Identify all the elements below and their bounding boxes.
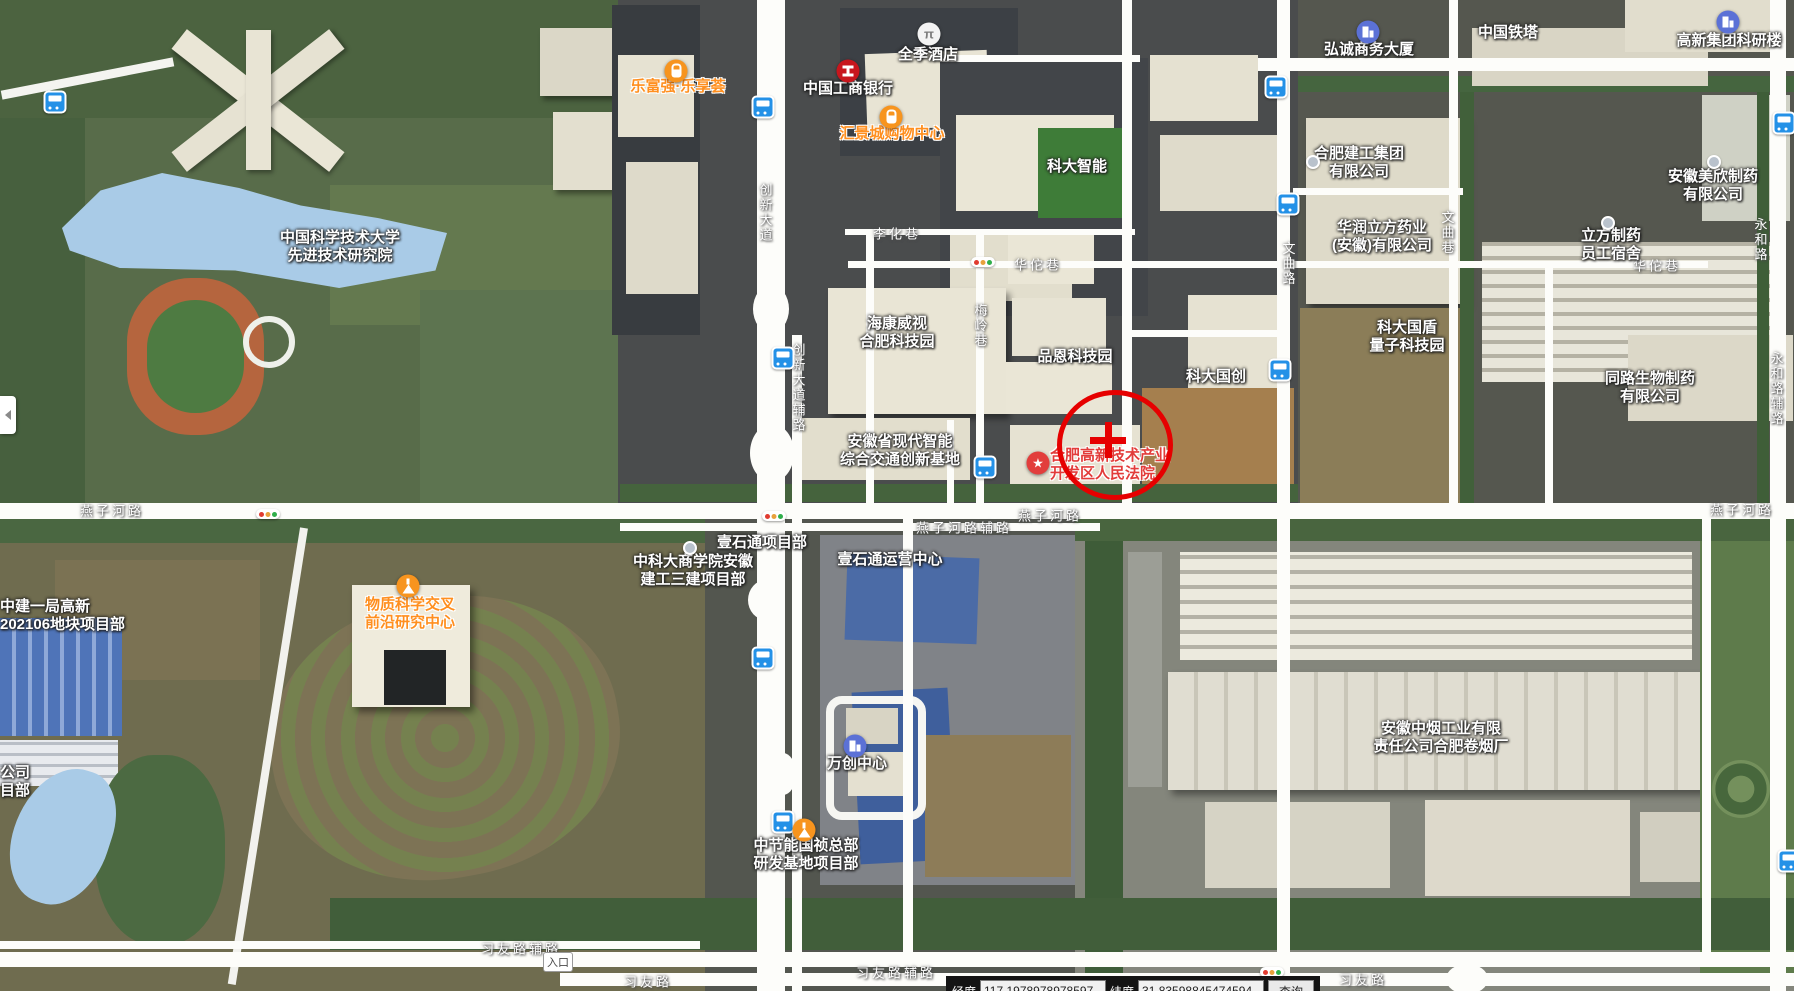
poi-label-line: 弘诚商务大厦	[1324, 41, 1414, 59]
road-segment	[903, 519, 913, 955]
traffic-light-icon	[971, 257, 995, 267]
poi-label-line: 目部	[0, 782, 30, 800]
poi-label-line: 中建一局高新	[0, 598, 125, 616]
poi-label-line: 安徽中烟工业有限	[1373, 720, 1508, 738]
dot-icon[interactable]	[1707, 155, 1721, 169]
poi-label-line: 合肥科技园	[859, 333, 934, 351]
poi-label-ustc-advanced-institute[interactable]: 中国科学技术大学先进技术研究院	[280, 229, 400, 265]
road-segment	[0, 941, 700, 949]
road-segment	[1702, 519, 1711, 955]
bus-stop-icon[interactable]	[1269, 359, 1292, 382]
terrain-patch	[246, 30, 271, 170]
road-segment	[753, 285, 789, 333]
poi-label-icbc-bank[interactable]: 中国工商银行	[803, 80, 893, 98]
latitude-label: 纬度	[1110, 983, 1134, 991]
terrain-patch	[1180, 552, 1692, 660]
chevron-left-icon	[5, 410, 11, 420]
panel-collapse-button[interactable]	[0, 396, 16, 434]
bus-stop-icon[interactable]	[752, 647, 775, 670]
road-segment	[792, 335, 802, 991]
poi-label-line: 责任公司合肥卷烟厂	[1373, 738, 1508, 756]
poi-label-ji-hotel[interactable]: 全季酒店	[898, 46, 958, 64]
road-name-label: 习友路辅路	[856, 963, 936, 982]
poi-label-yishitong-operations[interactable]: 壹石通运营中心	[837, 551, 942, 569]
road-name-label: 李化巷	[873, 224, 921, 243]
dot-icon[interactable]	[1601, 216, 1615, 230]
road-name-label: 燕子河路	[80, 501, 144, 520]
poi-label-guodun-quantum-park[interactable]: 科大国盾量子科技园	[1369, 319, 1444, 355]
poi-label-line: 综合交通创新基地	[840, 451, 960, 469]
flask-icon[interactable]	[793, 819, 816, 842]
terrain-patch	[1150, 55, 1258, 121]
entrance-badge: 入口	[543, 952, 573, 972]
road-name-label: 创新大道	[756, 183, 775, 243]
terrain-patch	[1205, 802, 1390, 888]
latitude-input[interactable]	[1138, 980, 1264, 991]
traffic-light-icon	[256, 509, 280, 519]
terrain-patch	[147, 300, 244, 413]
poi-label-line: 同路生物制药	[1605, 370, 1695, 388]
poi-label-line: 安徽省现代智能	[840, 433, 960, 451]
poi-label-line: 华润立方药业	[1332, 219, 1432, 237]
road-segment	[940, 55, 1140, 62]
terrain-patch	[626, 162, 698, 294]
road-name-label: 文曲路	[1279, 242, 1298, 287]
terrain-patch	[1460, 92, 1474, 505]
poi-label-anhui-tobacco-factory[interactable]: 安徽中烟工业有限责任公司合肥卷烟厂	[1373, 720, 1508, 756]
poi-label-line: 高新集团科研楼	[1676, 32, 1781, 50]
poi-label-hongcheng-tower[interactable]: 弘诚商务大厦	[1324, 41, 1414, 59]
poi-label-line: 有限公司	[1314, 163, 1404, 181]
poi-label-huarun-lifang-pharma[interactable]: 华润立方药业(安徽)有限公司	[1332, 219, 1432, 255]
poi-label-line: 全季酒店	[898, 46, 958, 64]
road-segment	[1277, 0, 1290, 991]
poi-label-meixin-pharma[interactable]: 安徽美欣制药有限公司	[1668, 168, 1758, 204]
poi-label-line: 先进技术研究院	[280, 247, 400, 265]
road-name-label: 习友路	[1339, 970, 1387, 989]
dot-icon[interactable]	[1306, 155, 1320, 169]
building-icon[interactable]	[1717, 11, 1740, 34]
poi-label-gaoxin-research-building[interactable]: 高新集团科研楼	[1676, 32, 1781, 50]
building-icon[interactable]	[1357, 21, 1380, 44]
star-icon[interactable]: ★	[1027, 452, 1050, 475]
terrain-patch	[384, 650, 446, 705]
poi-label-keda-guochuang[interactable]: 科大国创	[1186, 368, 1246, 386]
road-segment	[1446, 964, 1488, 991]
bus-stop-icon[interactable]	[1277, 193, 1300, 216]
bus-stop-icon[interactable]	[1773, 112, 1794, 135]
terrain-patch	[420, 290, 620, 505]
poi-label-line: 量子科技园	[1369, 337, 1444, 355]
bus-stop-icon[interactable]	[44, 91, 67, 114]
poi-label-china-tower[interactable]: 中国铁塔	[1478, 24, 1538, 42]
terrain-patch	[0, 118, 85, 505]
traffic-light-icon	[762, 511, 786, 521]
poi-label-line: 合肥建工集团	[1314, 145, 1404, 163]
bus-stop-icon[interactable]	[752, 96, 775, 119]
bus-stop-icon[interactable]	[974, 456, 997, 479]
query-button[interactable]: 查询	[1268, 980, 1314, 991]
road-name-label: 文曲巷	[1438, 211, 1457, 256]
poi-label-line: 公司	[0, 764, 30, 782]
poi-label-line: 前沿研究中心	[365, 614, 455, 632]
terrain-patch	[1712, 760, 1770, 818]
poi-label-hefei-construction-group[interactable]: 合肥建工集团有限公司	[1314, 145, 1404, 181]
poi-label-line: 万创中心	[827, 755, 887, 773]
poi-label-line: 壹石通项目部	[717, 534, 807, 552]
road-segment	[1122, 330, 1282, 337]
poi-label-line: 安徽美欣制药	[1668, 168, 1758, 186]
road-name-label: 永和路	[1751, 218, 1770, 263]
poi-label-zhongjieneng-site[interactable]: 中节能国祯总部研发基地项目部	[753, 837, 858, 873]
terrain-patch	[95, 755, 225, 945]
poi-label-yishitong-project[interactable]: 壹石通项目部	[717, 534, 807, 552]
road-segment	[1293, 188, 1463, 195]
terrain-patch	[1757, 92, 1769, 505]
longitude-label: 经度	[952, 983, 976, 991]
poi-label-hikvision-park[interactable]: 海康威视合肥科技园	[859, 315, 934, 351]
terrain-patch	[1160, 135, 1278, 211]
poi-label-line: 科大国盾	[1369, 319, 1444, 337]
poi-label-line: 立方制药	[1581, 227, 1641, 245]
road-name-label: 梅岭巷	[971, 304, 990, 349]
flask-icon[interactable]	[397, 575, 420, 598]
road-name-label: 永和路辅路	[1767, 352, 1786, 427]
bag-icon[interactable]	[665, 60, 688, 83]
poi-label-ustc-business-school-site[interactable]: 中科大商学院安徽建工三建项目部	[633, 553, 753, 589]
poi-label-line: 壹石通运营中心	[837, 551, 942, 569]
longitude-input[interactable]	[980, 980, 1106, 991]
poi-label-wanchuang-center[interactable]: 万创中心	[827, 755, 887, 773]
building-icon[interactable]	[844, 735, 867, 758]
target-crosshair-marker	[1090, 422, 1126, 458]
bag-icon[interactable]	[880, 106, 903, 129]
coordinate-bar: 经度 纬度 查询	[946, 976, 1320, 991]
poi-label-line: 中国铁塔	[1478, 24, 1538, 42]
poi-label-line: 海康威视	[859, 315, 934, 333]
poi-label-line: 科大国创	[1186, 368, 1246, 386]
bus-stop-icon[interactable]	[1265, 76, 1288, 99]
poi-label-matter-science-center[interactable]: 物质科学交叉前沿研究中心	[365, 596, 455, 632]
terrain-patch	[925, 735, 1071, 877]
road-segment	[1258, 58, 1794, 71]
terrain-patch	[1425, 800, 1630, 896]
poi-label-line: 有限公司	[1668, 186, 1758, 204]
poi-label-line: 品恩科技园	[1037, 348, 1112, 366]
road-name-label: 华佗巷	[1014, 255, 1062, 274]
terrain-patch	[0, 519, 705, 543]
road-name-label: 燕子河路	[1018, 506, 1082, 525]
poi-label-line: 员工宿舍	[1581, 245, 1641, 263]
poi-label-pinen-tech-park[interactable]: 品恩科技园	[1037, 348, 1112, 366]
poi-label-keda-zhineng[interactable]: 科大智能	[1047, 158, 1107, 176]
poi-label-line: (安徽)有限公司	[1332, 237, 1432, 255]
poi-label-edge-clipped-label[interactable]: 公司目部	[0, 764, 30, 800]
bank-icon[interactable]	[837, 60, 860, 83]
poi-label-line: 研发基地项目部	[753, 855, 858, 873]
bus-stop-icon[interactable]	[772, 347, 795, 370]
road-segment	[750, 424, 794, 482]
poi-label-line: 建工三建项目部	[633, 571, 753, 589]
road-segment	[1770, 0, 1786, 991]
satellite-map[interactable]: 中国科学技术大学先进技术研究院乐富强·乐享荟中国工商银行全季酒店汇景城购物中心科…	[0, 0, 1794, 991]
poi-label-line: 有限公司	[1605, 388, 1695, 406]
poi-label-line: 202106地块项目部	[0, 616, 125, 634]
poi-label-line: 中国科学技术大学	[280, 229, 400, 247]
bus-stop-icon[interactable]	[1778, 850, 1794, 873]
poi-label-tonglu-bio-pharma[interactable]: 同路生物制药有限公司	[1605, 370, 1695, 406]
terrain-patch	[1128, 552, 1162, 787]
road-name-label: 习友路	[624, 972, 672, 991]
bus-stop-icon[interactable]	[772, 811, 795, 834]
road-segment	[748, 580, 784, 620]
poi-label-anhui-transport-base[interactable]: 安徽省现代智能综合交通创新基地	[840, 433, 960, 469]
dot-icon[interactable]	[683, 541, 697, 555]
road-segment	[770, 753, 796, 795]
poi-label-line: 物质科学交叉	[365, 596, 455, 614]
terrain-patch	[1075, 519, 1794, 541]
poi-label-line: 中国工商银行	[803, 80, 893, 98]
poi-label-line: 中科大商学院安徽	[633, 553, 753, 571]
poi-label-lifang-dormitory[interactable]: 立方制药员工宿舍	[1581, 227, 1641, 263]
terrain-patch	[0, 618, 122, 736]
poi-label-zhongjian-site[interactable]: 中建一局高新202106地块项目部	[0, 598, 125, 634]
road-name-label: 燕子河路	[1710, 500, 1774, 519]
road-name-label: 燕子河路辅路	[916, 518, 1012, 537]
terrain-patch	[243, 316, 295, 368]
road-segment	[1545, 262, 1553, 505]
poi-label-line: 科大智能	[1047, 158, 1107, 176]
hotel-icon[interactable]: π	[918, 23, 941, 46]
